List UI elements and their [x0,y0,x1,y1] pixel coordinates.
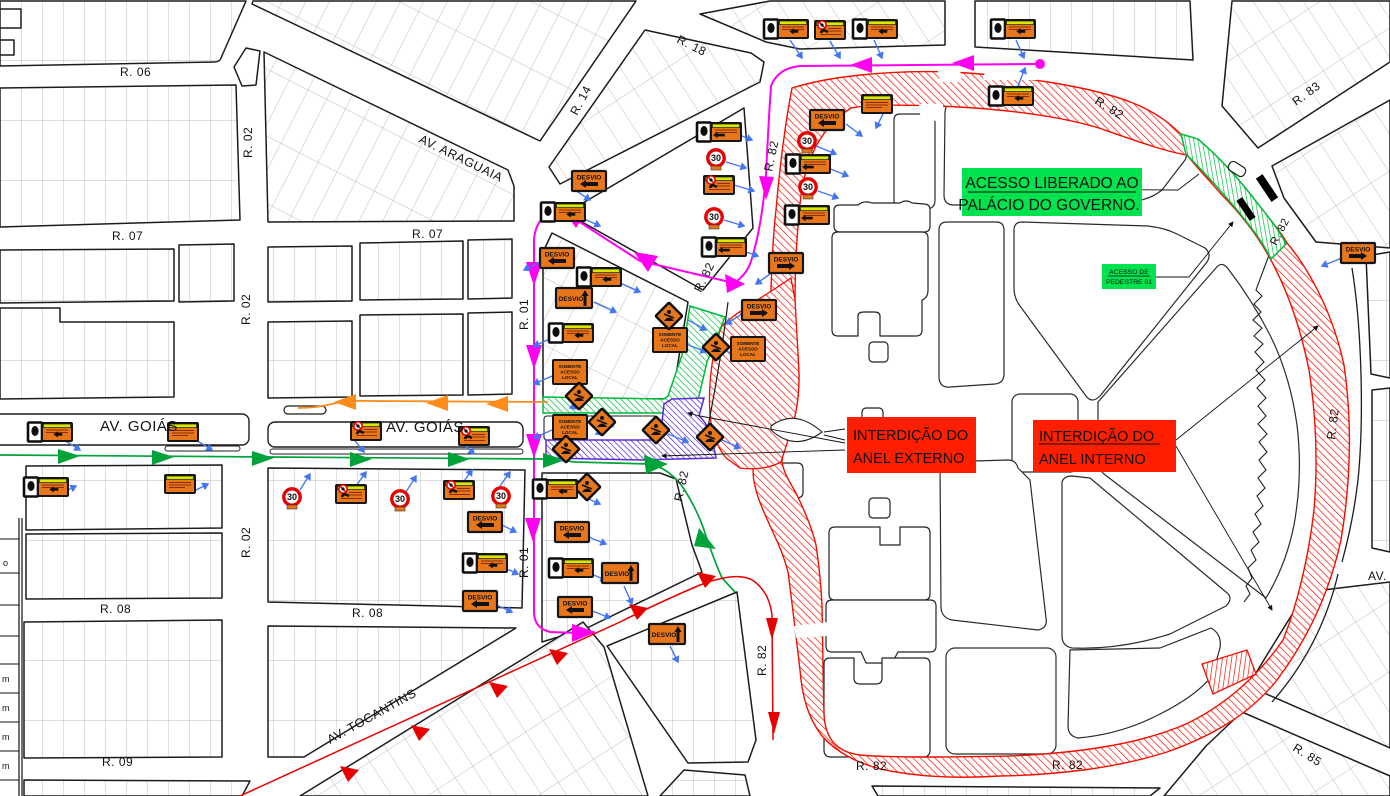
svg-text:AV.: AV. [1368,569,1387,583]
svg-text:INTERDIÇÃO DO: INTERDIÇÃO DO [1039,428,1154,445]
svg-text:ACESSO LIBERADO AO: ACESSO LIBERADO AO [965,175,1138,192]
svg-text:AV. GOIÁS: AV. GOIÁS [386,419,464,436]
svg-text:R. 08: R. 08 [100,602,131,616]
svg-text:R. 09: R. 09 [102,755,133,769]
svg-text:R. 82: R. 82 [1052,758,1083,772]
svg-text:m: m [2,761,10,771]
svg-text:ACESSO DE: ACESSO DE [1109,269,1149,276]
svg-text:AV. GOIÁS: AV. GOIÁS [100,418,178,435]
svg-text:PEDESTRE 01: PEDESTRE 01 [1106,279,1152,286]
svg-text:m: m [2,674,10,684]
svg-text:R. 06: R. 06 [120,65,151,79]
svg-text:R. 02: R. 02 [239,294,253,325]
svg-text:INTERDIÇÃO DO: INTERDIÇÃO DO [853,427,968,444]
svg-text:m: m [2,732,10,742]
svg-text:m: m [2,703,10,713]
svg-text:R. 02: R. 02 [239,527,253,558]
svg-text:R. 08: R. 08 [352,606,383,620]
svg-text:ANEL EXTERNO: ANEL EXTERNO [853,451,964,467]
svg-text:R. 01: R. 01 [517,299,531,330]
svg-text:R. 07: R. 07 [412,227,443,241]
svg-text:R. 82: R. 82 [856,759,887,773]
svg-text:o: o [3,558,8,568]
svg-text:R. 07: R. 07 [112,229,143,243]
svg-text:R. 01: R. 01 [517,547,531,578]
svg-text:R. 82: R. 82 [755,645,769,676]
svg-text:ANEL INTERNO: ANEL INTERNO [1039,452,1146,468]
svg-text:R. 02: R. 02 [241,127,255,158]
svg-text:PALÁCIO DO GOVERNO.: PALÁCIO DO GOVERNO. [958,197,1139,214]
